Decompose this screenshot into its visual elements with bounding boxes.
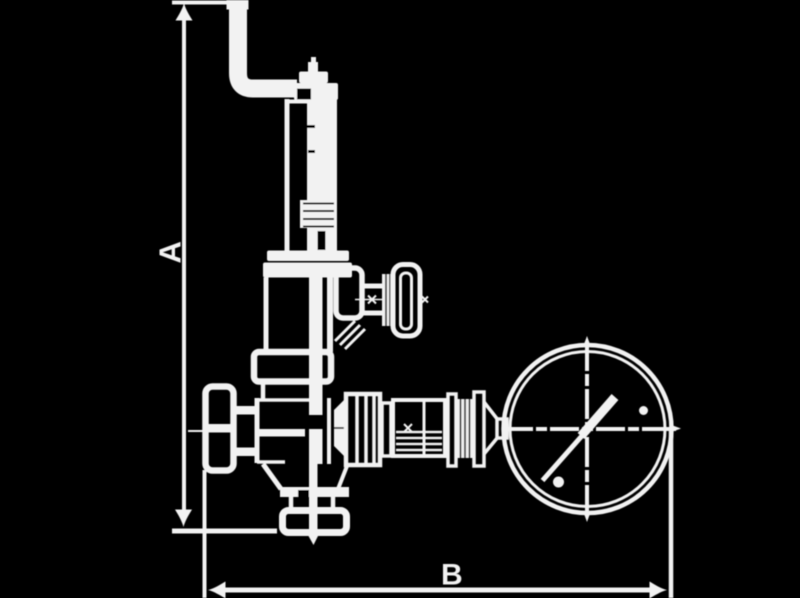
svg-text:A: A <box>153 241 188 263</box>
svg-text:B: B <box>441 559 463 592</box>
